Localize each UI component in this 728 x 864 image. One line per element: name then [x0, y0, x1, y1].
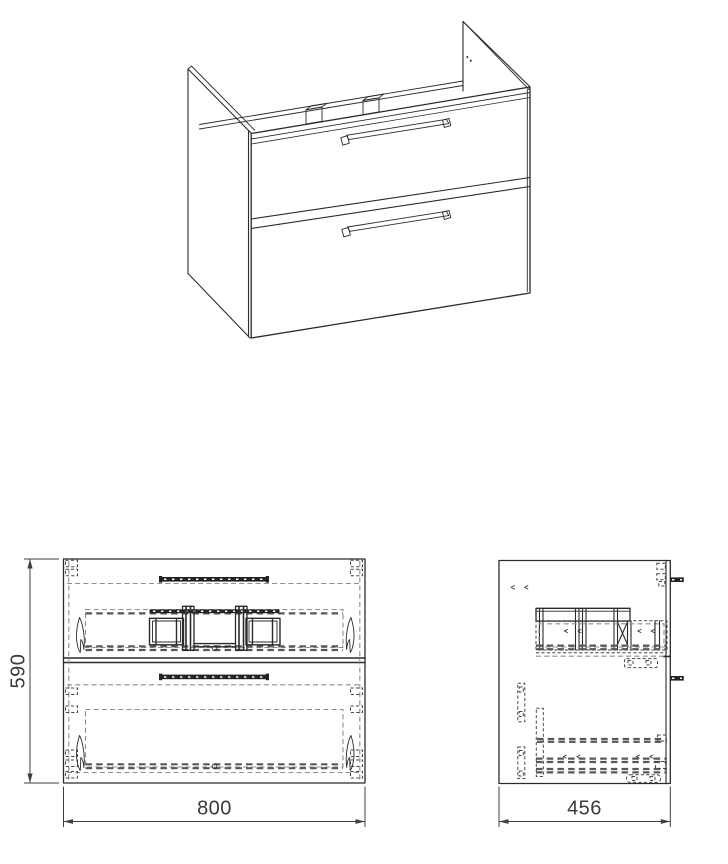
drawer-handle-top-3d: [341, 118, 451, 145]
right-back-panel: [463, 22, 530, 92]
side-wall-rails: [518, 683, 525, 778]
front-slide-levers: [77, 618, 354, 771]
front-outline: [64, 559, 366, 783]
side-handle-top: [670, 577, 684, 582]
dim-depth: 456: [499, 787, 670, 828]
front-brackets-left: [66, 560, 78, 778]
side-brackets-top: [657, 563, 666, 586]
front-brackets-right: [351, 560, 363, 778]
front-drawer-divider: [64, 658, 366, 663]
perspective-view: [188, 22, 530, 339]
screw-hole-dot: [470, 60, 472, 62]
side-handle-bottom: [670, 676, 684, 681]
screw-hole-dot: [466, 56, 468, 58]
drawer-divider-3d: [251, 178, 530, 229]
technical-drawing-page: 590 800: [0, 0, 728, 864]
rail-bracket-tabs: [306, 94, 384, 124]
front-drawer-box-top: [86, 610, 344, 651]
depth-dim-label: 456: [567, 798, 602, 820]
drawer-handle-bottom-3d: [342, 210, 451, 237]
side-drawer-slides: [536, 708, 667, 782]
height-dim-label: 590: [8, 654, 30, 689]
width-dim-label: 800: [197, 798, 232, 820]
siphon-cutout-front: [150, 606, 281, 650]
drawing-canvas: 590 800: [0, 0, 728, 864]
dim-height: 590: [8, 559, 60, 783]
front-handle-bottom: [159, 674, 269, 681]
side-view: 456: [499, 561, 684, 828]
cabinet-front-face: [251, 87, 530, 338]
front-handle-top: [159, 576, 269, 583]
side-outline: [499, 561, 670, 784]
front-view: 590 800: [8, 559, 366, 827]
left-side-panel: [188, 66, 255, 338]
siphon-cutout-side: [536, 608, 667, 667]
dim-width: 800: [64, 787, 366, 828]
front-drawer-box-bottom: [86, 710, 344, 769]
